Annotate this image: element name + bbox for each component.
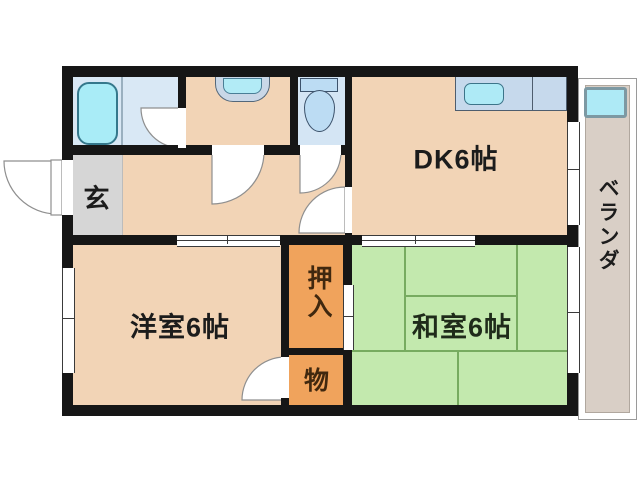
dk-window (567, 122, 580, 225)
washroom-door-opening (212, 145, 264, 155)
washroom-door-arc (212, 152, 264, 204)
japanese-room-window (567, 247, 580, 373)
wall-closet-storage (281, 348, 349, 355)
storage-label: 物 (304, 361, 330, 397)
bathroom-door-opening (178, 108, 186, 148)
storage-door-opening (281, 357, 289, 398)
veranda-label: ベランダ (592, 177, 622, 273)
storage-door-arc (242, 357, 285, 400)
dk-door-arc (299, 187, 345, 233)
wall-outer-top (62, 66, 578, 77)
floor-plan: 玄 DK6帖 洋室6帖 和室6帖 押入 物 ベランダ (0, 0, 640, 480)
closet-sliding-door (343, 285, 354, 350)
dk-label: DK6帖 (413, 138, 498, 177)
japanese-room-label: 和室6帖 (412, 306, 512, 345)
wall-middle (62, 235, 578, 245)
wall-washroom-toilet (290, 66, 298, 155)
bathroom-door-arc (141, 108, 181, 148)
entrance-door-arc (4, 161, 57, 214)
toilet-door-opening (300, 145, 341, 155)
toilet-door-arc (300, 152, 341, 193)
dk-door-opening (345, 187, 352, 233)
entrance-door-leaf (51, 160, 62, 215)
western-room-label: 洋室6帖 (130, 306, 230, 345)
western-room-window (62, 268, 75, 373)
entrance-label: 玄 (83, 179, 110, 216)
wall-outer-bottom (62, 405, 578, 416)
entrance-door-opening (62, 160, 73, 215)
closet-label: 押入 (300, 265, 336, 321)
western-room-sliding-door (177, 235, 280, 247)
japanese-room-sliding-door (362, 235, 475, 247)
